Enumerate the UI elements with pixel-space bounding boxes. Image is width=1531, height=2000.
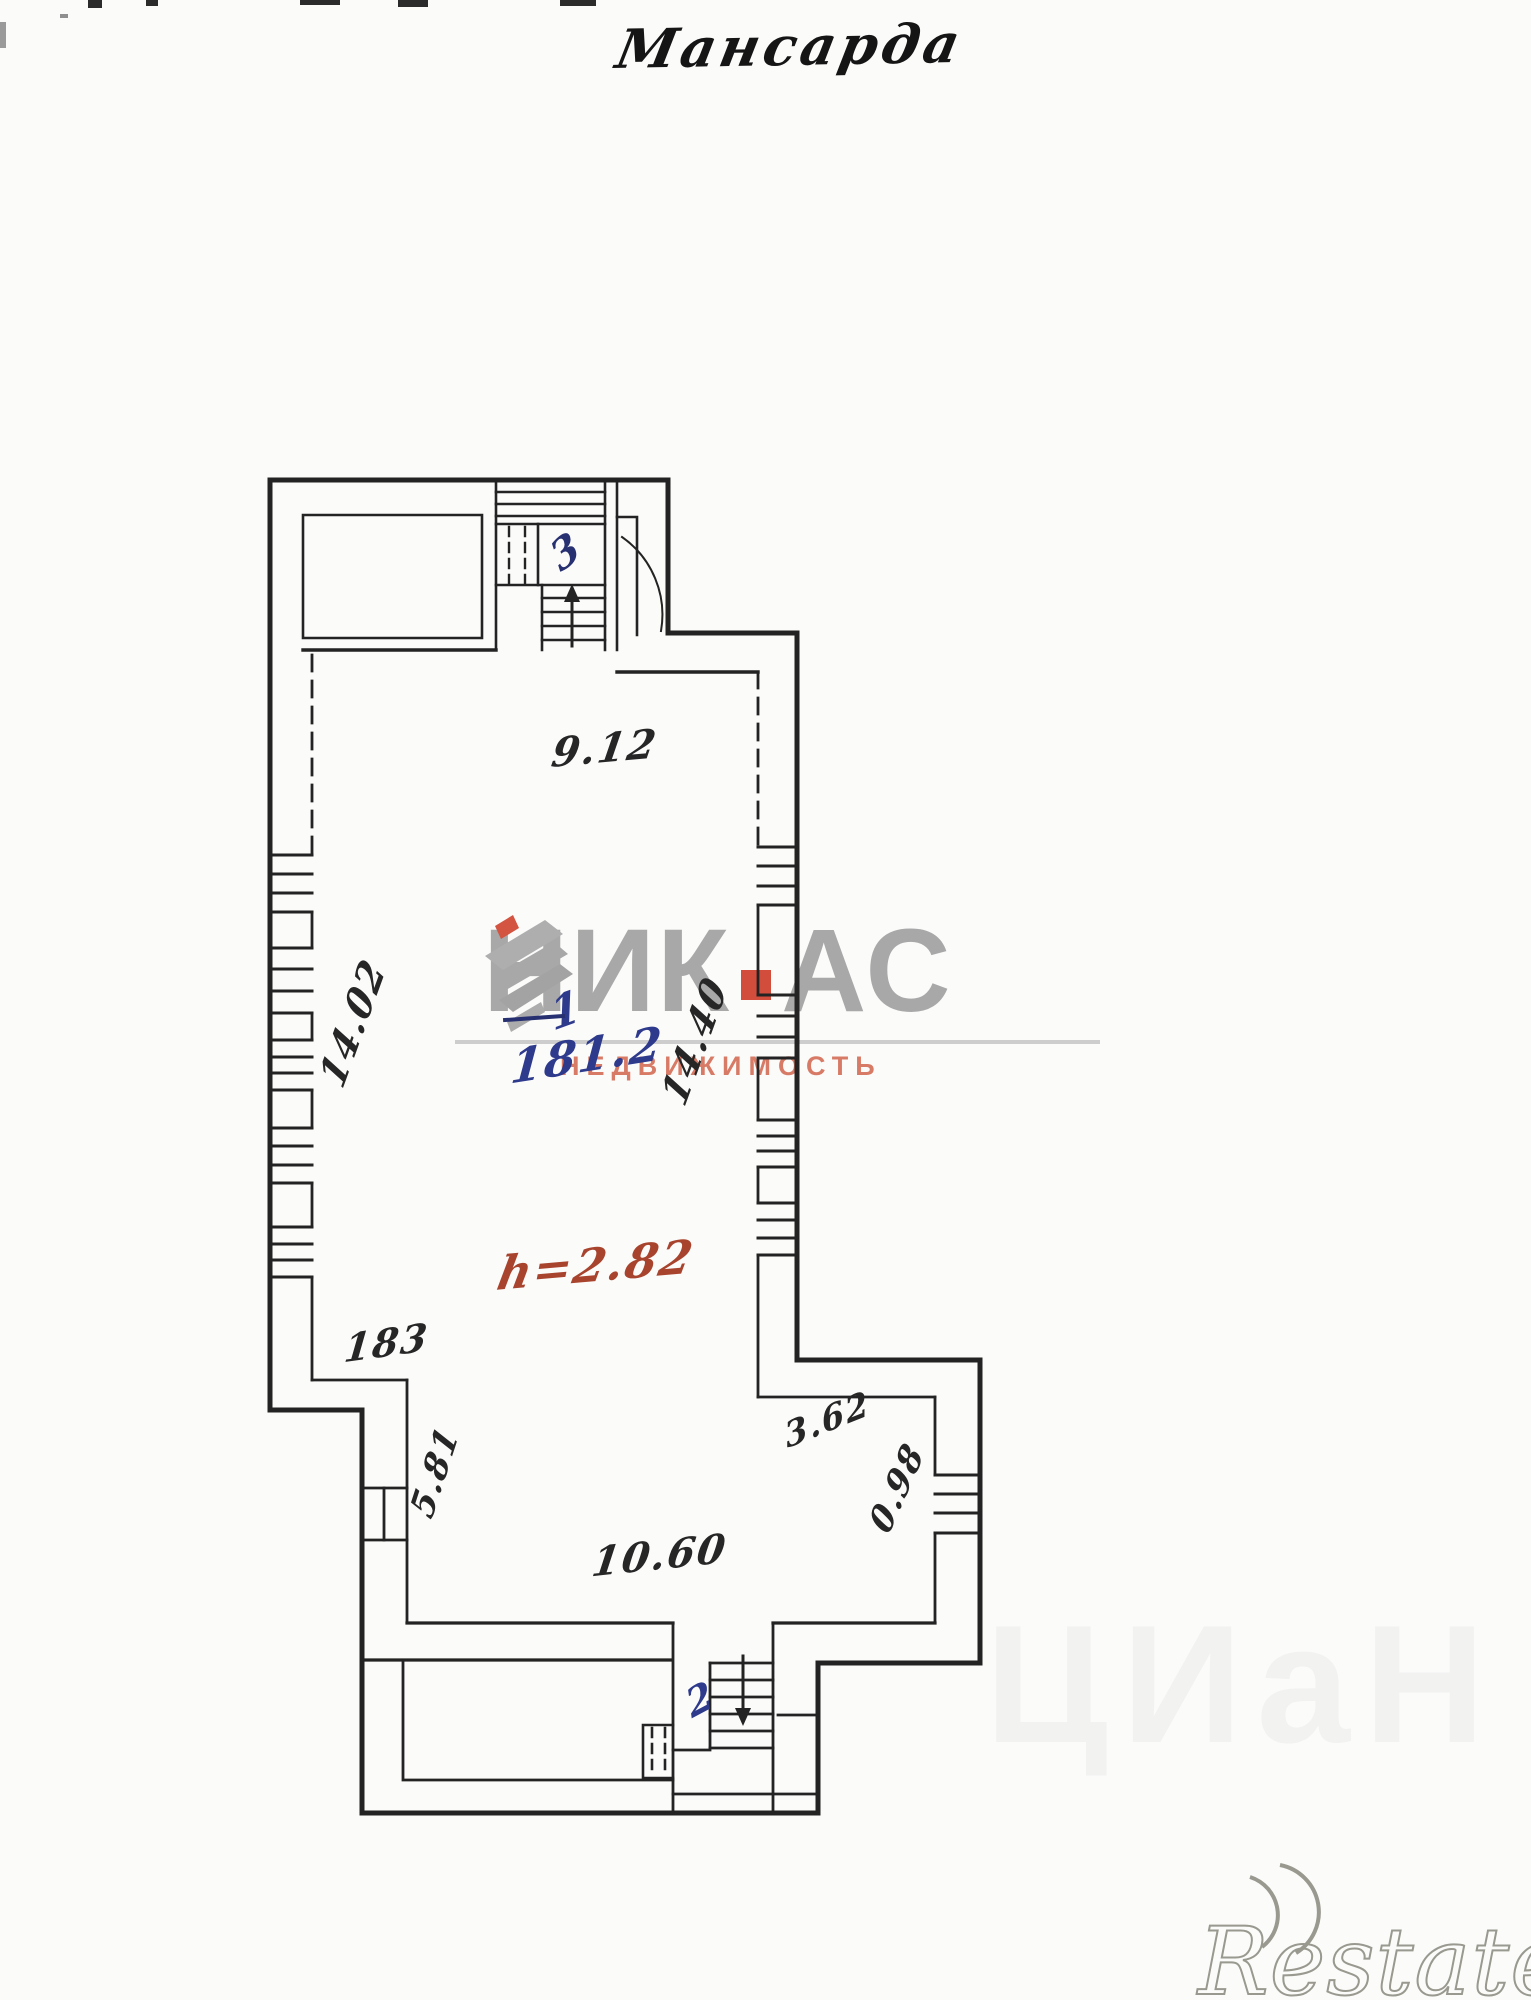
door-hatch-symbol-top [509,527,525,583]
restate-watermark: Restate [1198,1908,1531,2000]
window-symbols-left [270,855,312,1277]
door-swing-arc [622,537,662,631]
dimension-top-width: 9.12 [548,720,661,777]
arrow-down-icon [735,1656,751,1726]
bottom-left-room [403,1660,673,1780]
floor-plan-drawing [0,0,1531,2000]
door-hatch-symbol-bottom [643,1725,673,1778]
door-symbol-left [362,1488,407,1540]
scanned-floor-plan-sheet: ЦИаН НИК АС НЕДВИЖИМОСТЬ [0,0,1531,2000]
window-symbols-right [758,847,797,1255]
arrow-up-icon [564,584,580,646]
window-symbol-right-lower [935,1475,980,1533]
outer-wall [270,480,980,1813]
closet-inner-wall [303,515,482,638]
top-right-closet [617,517,662,635]
page-title: Мансарда [611,11,969,81]
